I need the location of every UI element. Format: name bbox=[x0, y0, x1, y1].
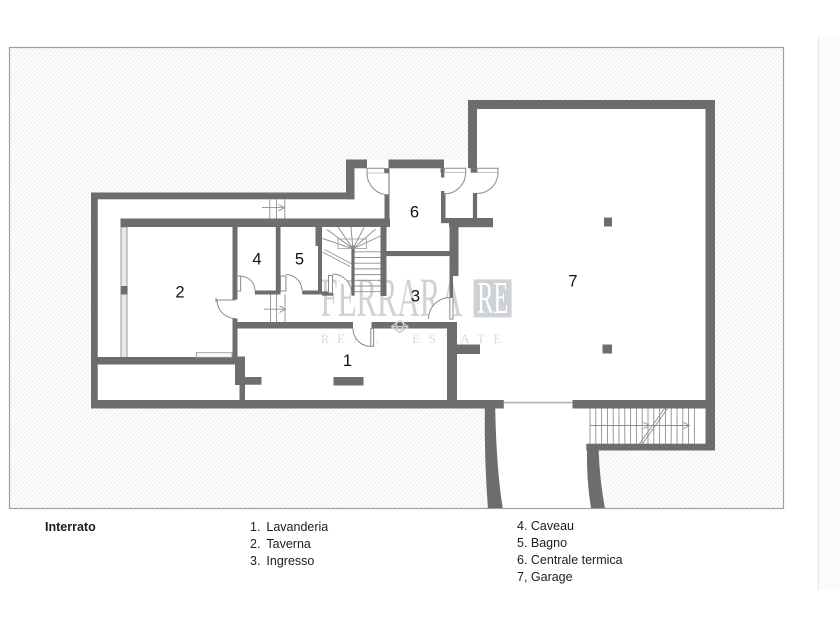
svg-text:3: 3 bbox=[411, 288, 420, 306]
svg-text:1: 1 bbox=[343, 352, 352, 370]
svg-text:2: 2 bbox=[175, 284, 184, 302]
svg-text:5: 5 bbox=[295, 251, 304, 269]
svg-text:6: 6 bbox=[410, 204, 419, 222]
svg-text:4: 4 bbox=[252, 251, 261, 269]
svg-text:RE: RE bbox=[477, 273, 508, 323]
svg-text:7: 7 bbox=[568, 273, 577, 291]
